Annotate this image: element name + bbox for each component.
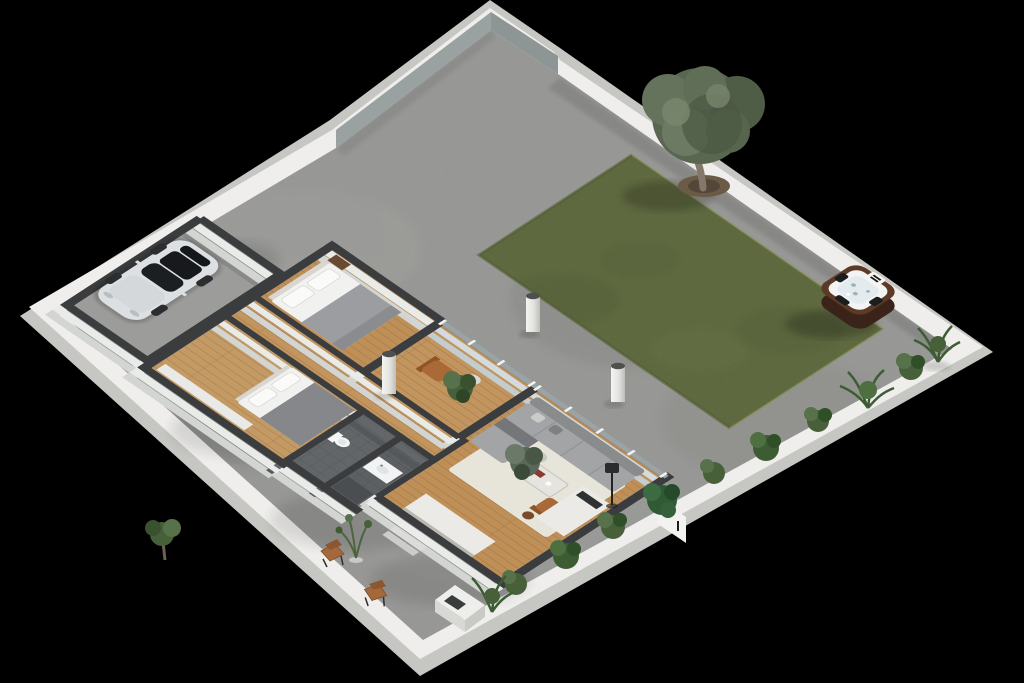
lamp-shade xyxy=(605,463,619,473)
render-canvas: Isometric cutaway render of a walled res… xyxy=(0,0,1024,683)
floor-plan-render: Isometric cutaway render of a walled res… xyxy=(0,0,1024,683)
lamp-base xyxy=(606,504,618,509)
